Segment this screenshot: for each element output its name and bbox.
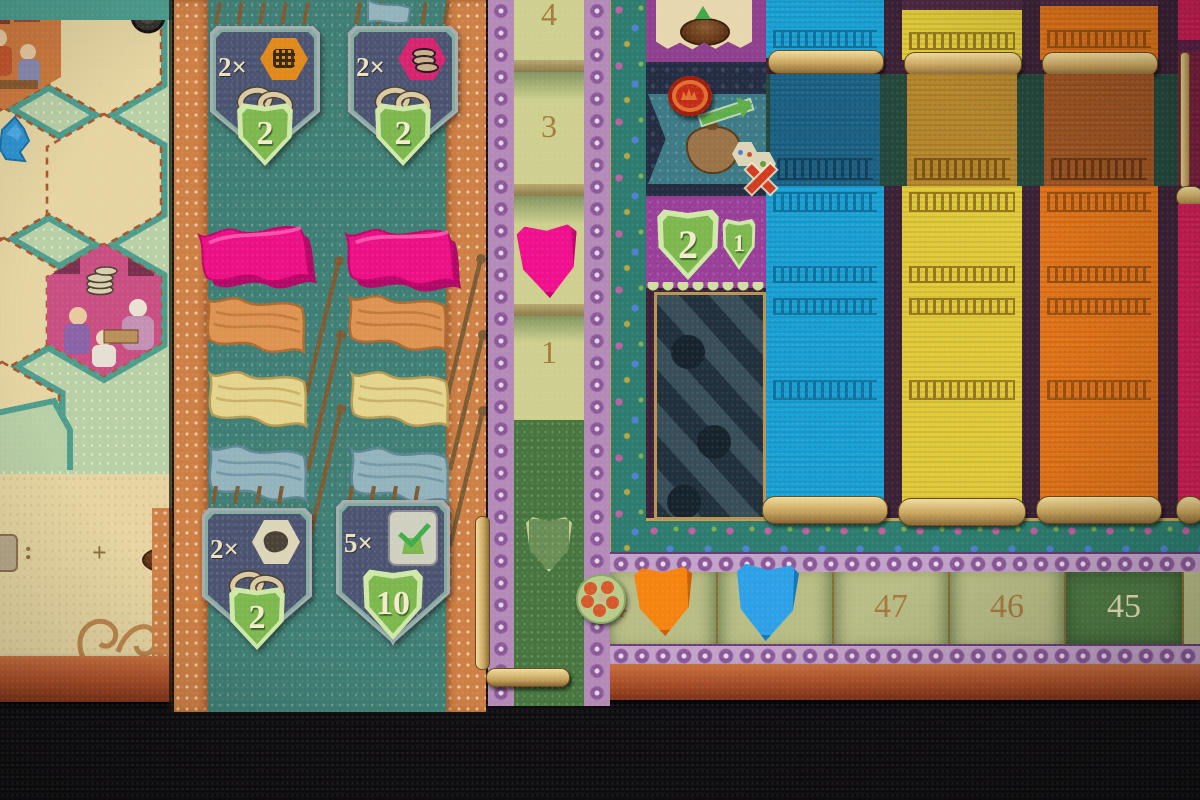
disc-icon	[680, 18, 730, 46]
reward-banner: 2 1	[646, 198, 766, 286]
flower-center	[597, 593, 606, 602]
cloth-tile-stack-yellow[interactable]	[902, 186, 1022, 508]
flagpole-stubs-top	[210, 0, 460, 26]
cloth-tile-stack-orange[interactable]	[1040, 186, 1158, 508]
red-disc-token[interactable]	[668, 76, 712, 116]
track-space-4: 4	[514, 0, 584, 33]
scroll-roll	[1036, 496, 1162, 524]
red-x-icon	[744, 162, 778, 196]
tile-multiplier: 2×	[218, 52, 247, 83]
reward-shield: 2	[236, 102, 294, 166]
space-divider	[514, 60, 584, 72]
scroll-rod-horizontal	[486, 668, 570, 687]
shield-watermark	[526, 516, 572, 572]
pink-rank-token[interactable]	[516, 222, 580, 299]
banner-shield-large: 2	[656, 208, 720, 280]
market-column-yellow	[902, 0, 1022, 518]
scroll-curl	[1042, 52, 1158, 76]
photo-scene: : + )	[0, 0, 1200, 800]
flag-supply-panel: 2× 2 2× 2	[174, 0, 486, 712]
pink-flag-piece-left[interactable]	[199, 218, 317, 299]
checkmark-panel	[390, 512, 436, 564]
scroll-curl-edge	[1180, 52, 1190, 188]
market-column-pink	[1178, 0, 1200, 518]
cloth-tile-stack-blue[interactable]	[766, 186, 884, 508]
cropped-blue-flag	[368, 0, 410, 23]
reward-tile-complete[interactable]: 5× 10	[336, 500, 450, 646]
scroll-curl	[768, 50, 884, 74]
cloth-tile-pink[interactable]	[1178, 0, 1200, 40]
checkmark-icon	[398, 514, 431, 548]
pink-flag-piece-right[interactable]	[346, 223, 461, 298]
reward-tile-coins[interactable]: 2× 2	[348, 26, 458, 160]
reward-tile-weave[interactable]: 2× 2	[210, 26, 320, 160]
flower-petals	[584, 582, 597, 595]
market-board-edge	[590, 664, 1200, 700]
printed-scroll-yellow	[907, 74, 1017, 186]
teal-divider-strip	[0, 0, 172, 20]
reward-shield: 2	[374, 102, 432, 166]
reward-tile-glove[interactable]: 2× 2	[202, 508, 312, 646]
crown-icon	[681, 88, 697, 100]
up-arrow-icon	[695, 0, 711, 19]
formula-plus: +	[92, 538, 107, 568]
score-cell-45: 45	[1066, 572, 1184, 644]
cropped-icon	[0, 534, 18, 572]
formula-colon: :	[24, 536, 33, 566]
score-cell-44	[1184, 572, 1200, 644]
printed-scroll-blue	[770, 74, 880, 186]
track-green-zone	[514, 420, 584, 706]
track-border-left	[488, 0, 514, 706]
space-divider	[514, 184, 584, 196]
reward-shield: 10	[362, 568, 424, 640]
hex-grid	[0, 0, 176, 470]
damask-panel	[654, 292, 766, 520]
track-space-1: 1	[514, 334, 584, 371]
market-column-orange	[1040, 0, 1158, 518]
reward-shield: 2	[228, 586, 286, 650]
banner-shield-small: 1	[722, 218, 756, 270]
printed-scroll-orange	[1044, 74, 1154, 186]
scroll-roll	[1176, 496, 1200, 524]
score-track: 4 47 46 45	[590, 572, 1200, 644]
action-column: 2 1	[646, 0, 766, 518]
flower-token[interactable]	[576, 574, 626, 624]
goods-sack-icon	[686, 126, 740, 174]
cloth-tile-stack-pink[interactable]	[1178, 204, 1200, 508]
scroll-curl	[904, 52, 1022, 76]
scroll-rod-vertical	[475, 516, 490, 670]
track-spaces: 4 3 1	[514, 0, 584, 706]
track-space-3: 3	[514, 108, 584, 145]
left-hex-board: : + )	[0, 0, 172, 658]
tile-multiplier: 2×	[210, 534, 239, 565]
tile-multiplier: 5×	[344, 528, 373, 559]
score-cell-47: 47	[834, 572, 950, 644]
market-column-blue	[766, 0, 884, 518]
space-divider	[514, 304, 584, 316]
score-cell-46: 46	[950, 572, 1066, 644]
left-board-edge	[0, 656, 172, 702]
market-board: 2 1	[590, 0, 1200, 700]
scroll-roll	[898, 498, 1026, 526]
scroll-roll	[762, 496, 888, 524]
left-board-apron: : + )	[0, 474, 172, 658]
tile-multiplier: 2×	[356, 52, 385, 83]
cloth-market	[766, 0, 1200, 518]
